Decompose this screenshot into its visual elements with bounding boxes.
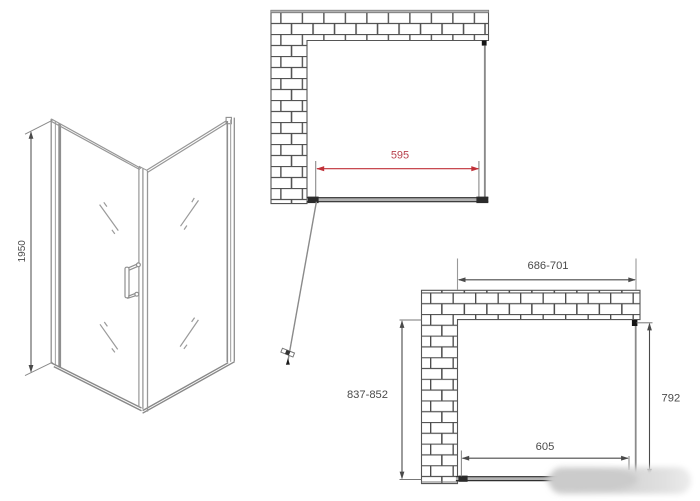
svg-text:792: 792 [662, 393, 681, 405]
svg-text:837-852: 837-852 [347, 389, 388, 401]
svg-text:595: 595 [391, 149, 409, 161]
svg-text:1950: 1950 [17, 240, 28, 263]
svg-text:686-701: 686-701 [527, 260, 568, 272]
svg-text:605: 605 [536, 441, 555, 453]
